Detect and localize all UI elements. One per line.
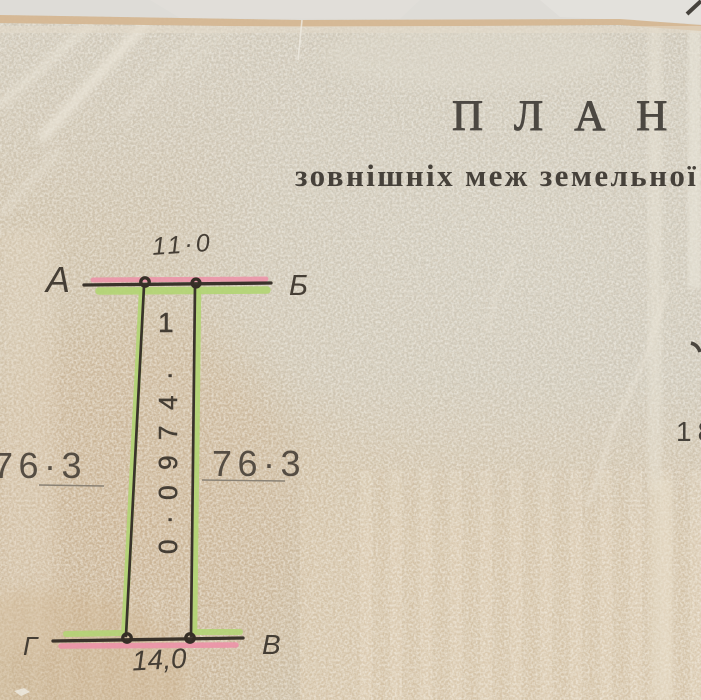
svg-text:0·0974·: 0·0974·	[153, 356, 183, 554]
svg-text:В: В	[262, 629, 281, 660]
svg-text:Б: Б	[289, 270, 308, 302]
svg-text:ПЛАН: ПЛАН	[452, 93, 698, 140]
svg-text:1: 1	[158, 307, 174, 338]
svg-text:76·3: 76·3	[0, 445, 87, 486]
svg-text:Г: Г	[23, 631, 39, 661]
svg-text:А: А	[44, 259, 70, 300]
svg-text:11·0: 11·0	[151, 229, 214, 261]
svg-text:14,0: 14,0	[131, 643, 187, 677]
svg-text:зовнішніх меж земельної: зовнішніх меж земельної	[295, 158, 698, 193]
svg-text:18: 18	[676, 416, 701, 447]
svg-text:76·3: 76·3	[212, 443, 306, 484]
